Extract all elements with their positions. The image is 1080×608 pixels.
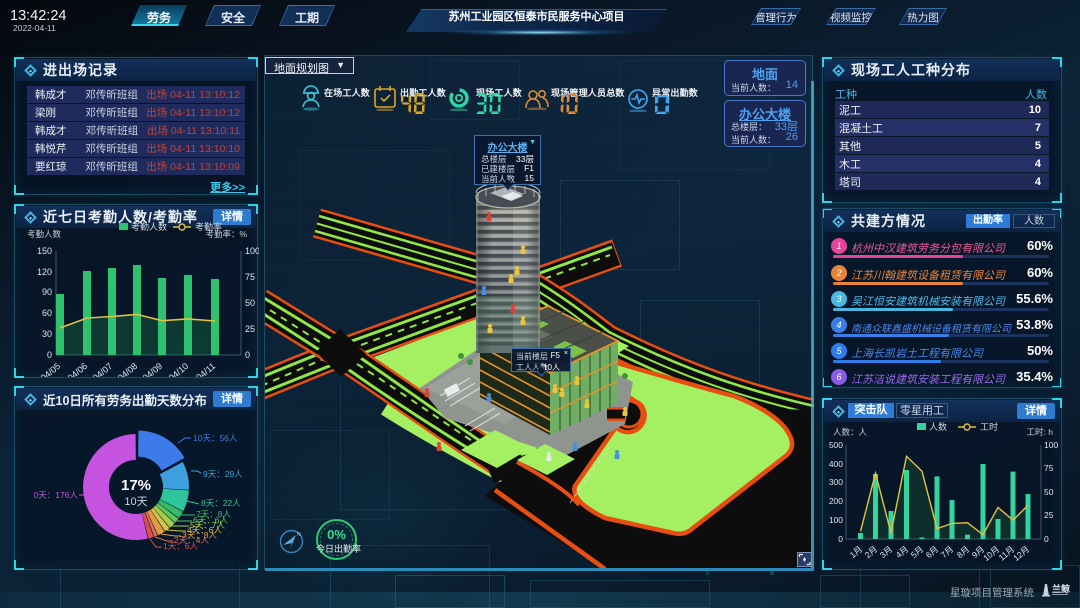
svg-text:50: 50: [245, 298, 255, 308]
svg-text:04/11: 04/11: [194, 361, 217, 377]
svg-text:0: 0: [47, 350, 52, 360]
svg-text:500: 500: [829, 440, 843, 450]
svg-text:人数：人: 人数：人: [833, 427, 868, 437]
svg-text:04/05: 04/05: [39, 361, 63, 377]
svg-text:50: 50: [1044, 487, 1054, 497]
svg-text:12月: 12月: [1011, 544, 1031, 563]
svg-text:10天：56人: 10天：56人: [193, 433, 238, 443]
svg-text:04/06: 04/06: [66, 361, 90, 377]
svg-text:7月: 7月: [939, 544, 956, 560]
svg-text:04/08: 04/08: [116, 361, 140, 377]
svg-text:150: 150: [37, 246, 52, 256]
svg-text:工时: 工时: [980, 421, 998, 432]
svg-text:工时: h: 工时: h: [1027, 427, 1054, 437]
svg-text:90: 90: [42, 287, 52, 297]
svg-text:75: 75: [1044, 463, 1054, 473]
svg-text:9天：29人: 9天：29人: [203, 469, 243, 479]
svg-text:0: 0: [838, 534, 843, 544]
svg-text:0天：176人: 0天：176人: [34, 490, 79, 500]
svg-text:考勤率：%: 考勤率：%: [205, 229, 247, 239]
svg-text:考勤人数: 考勤人数: [131, 221, 167, 232]
svg-text:100: 100: [245, 246, 259, 256]
svg-text:N: N: [297, 532, 301, 538]
svg-text:400: 400: [829, 459, 843, 469]
svg-text:120: 120: [37, 267, 52, 277]
svg-text:10天: 10天: [124, 496, 147, 508]
svg-text:25: 25: [1044, 510, 1054, 520]
svg-text:100: 100: [829, 515, 843, 525]
svg-text:考勤人数: 考勤人数: [27, 229, 62, 239]
svg-text:04/10: 04/10: [167, 361, 191, 377]
svg-text:30: 30: [42, 329, 52, 339]
svg-text:3月: 3月: [878, 544, 895, 560]
svg-text:300: 300: [829, 477, 843, 487]
svg-text:人数: 人数: [929, 421, 947, 432]
svg-text:04/09: 04/09: [141, 361, 165, 377]
svg-text:75: 75: [245, 272, 255, 282]
svg-text:兰鲸: 兰鲸: [1052, 583, 1070, 594]
svg-text:17%: 17%: [121, 477, 151, 494]
svg-text:25: 25: [245, 324, 255, 334]
svg-text:1天：6人: 1天：6人: [163, 541, 198, 551]
svg-text:100: 100: [1044, 440, 1058, 450]
svg-text:60: 60: [42, 308, 52, 318]
svg-text:0: 0: [245, 350, 250, 360]
svg-text:04/07: 04/07: [91, 361, 115, 377]
svg-text:200: 200: [829, 496, 843, 506]
svg-text:0: 0: [1044, 534, 1049, 544]
svg-text:8天：22人: 8天：22人: [201, 498, 241, 508]
